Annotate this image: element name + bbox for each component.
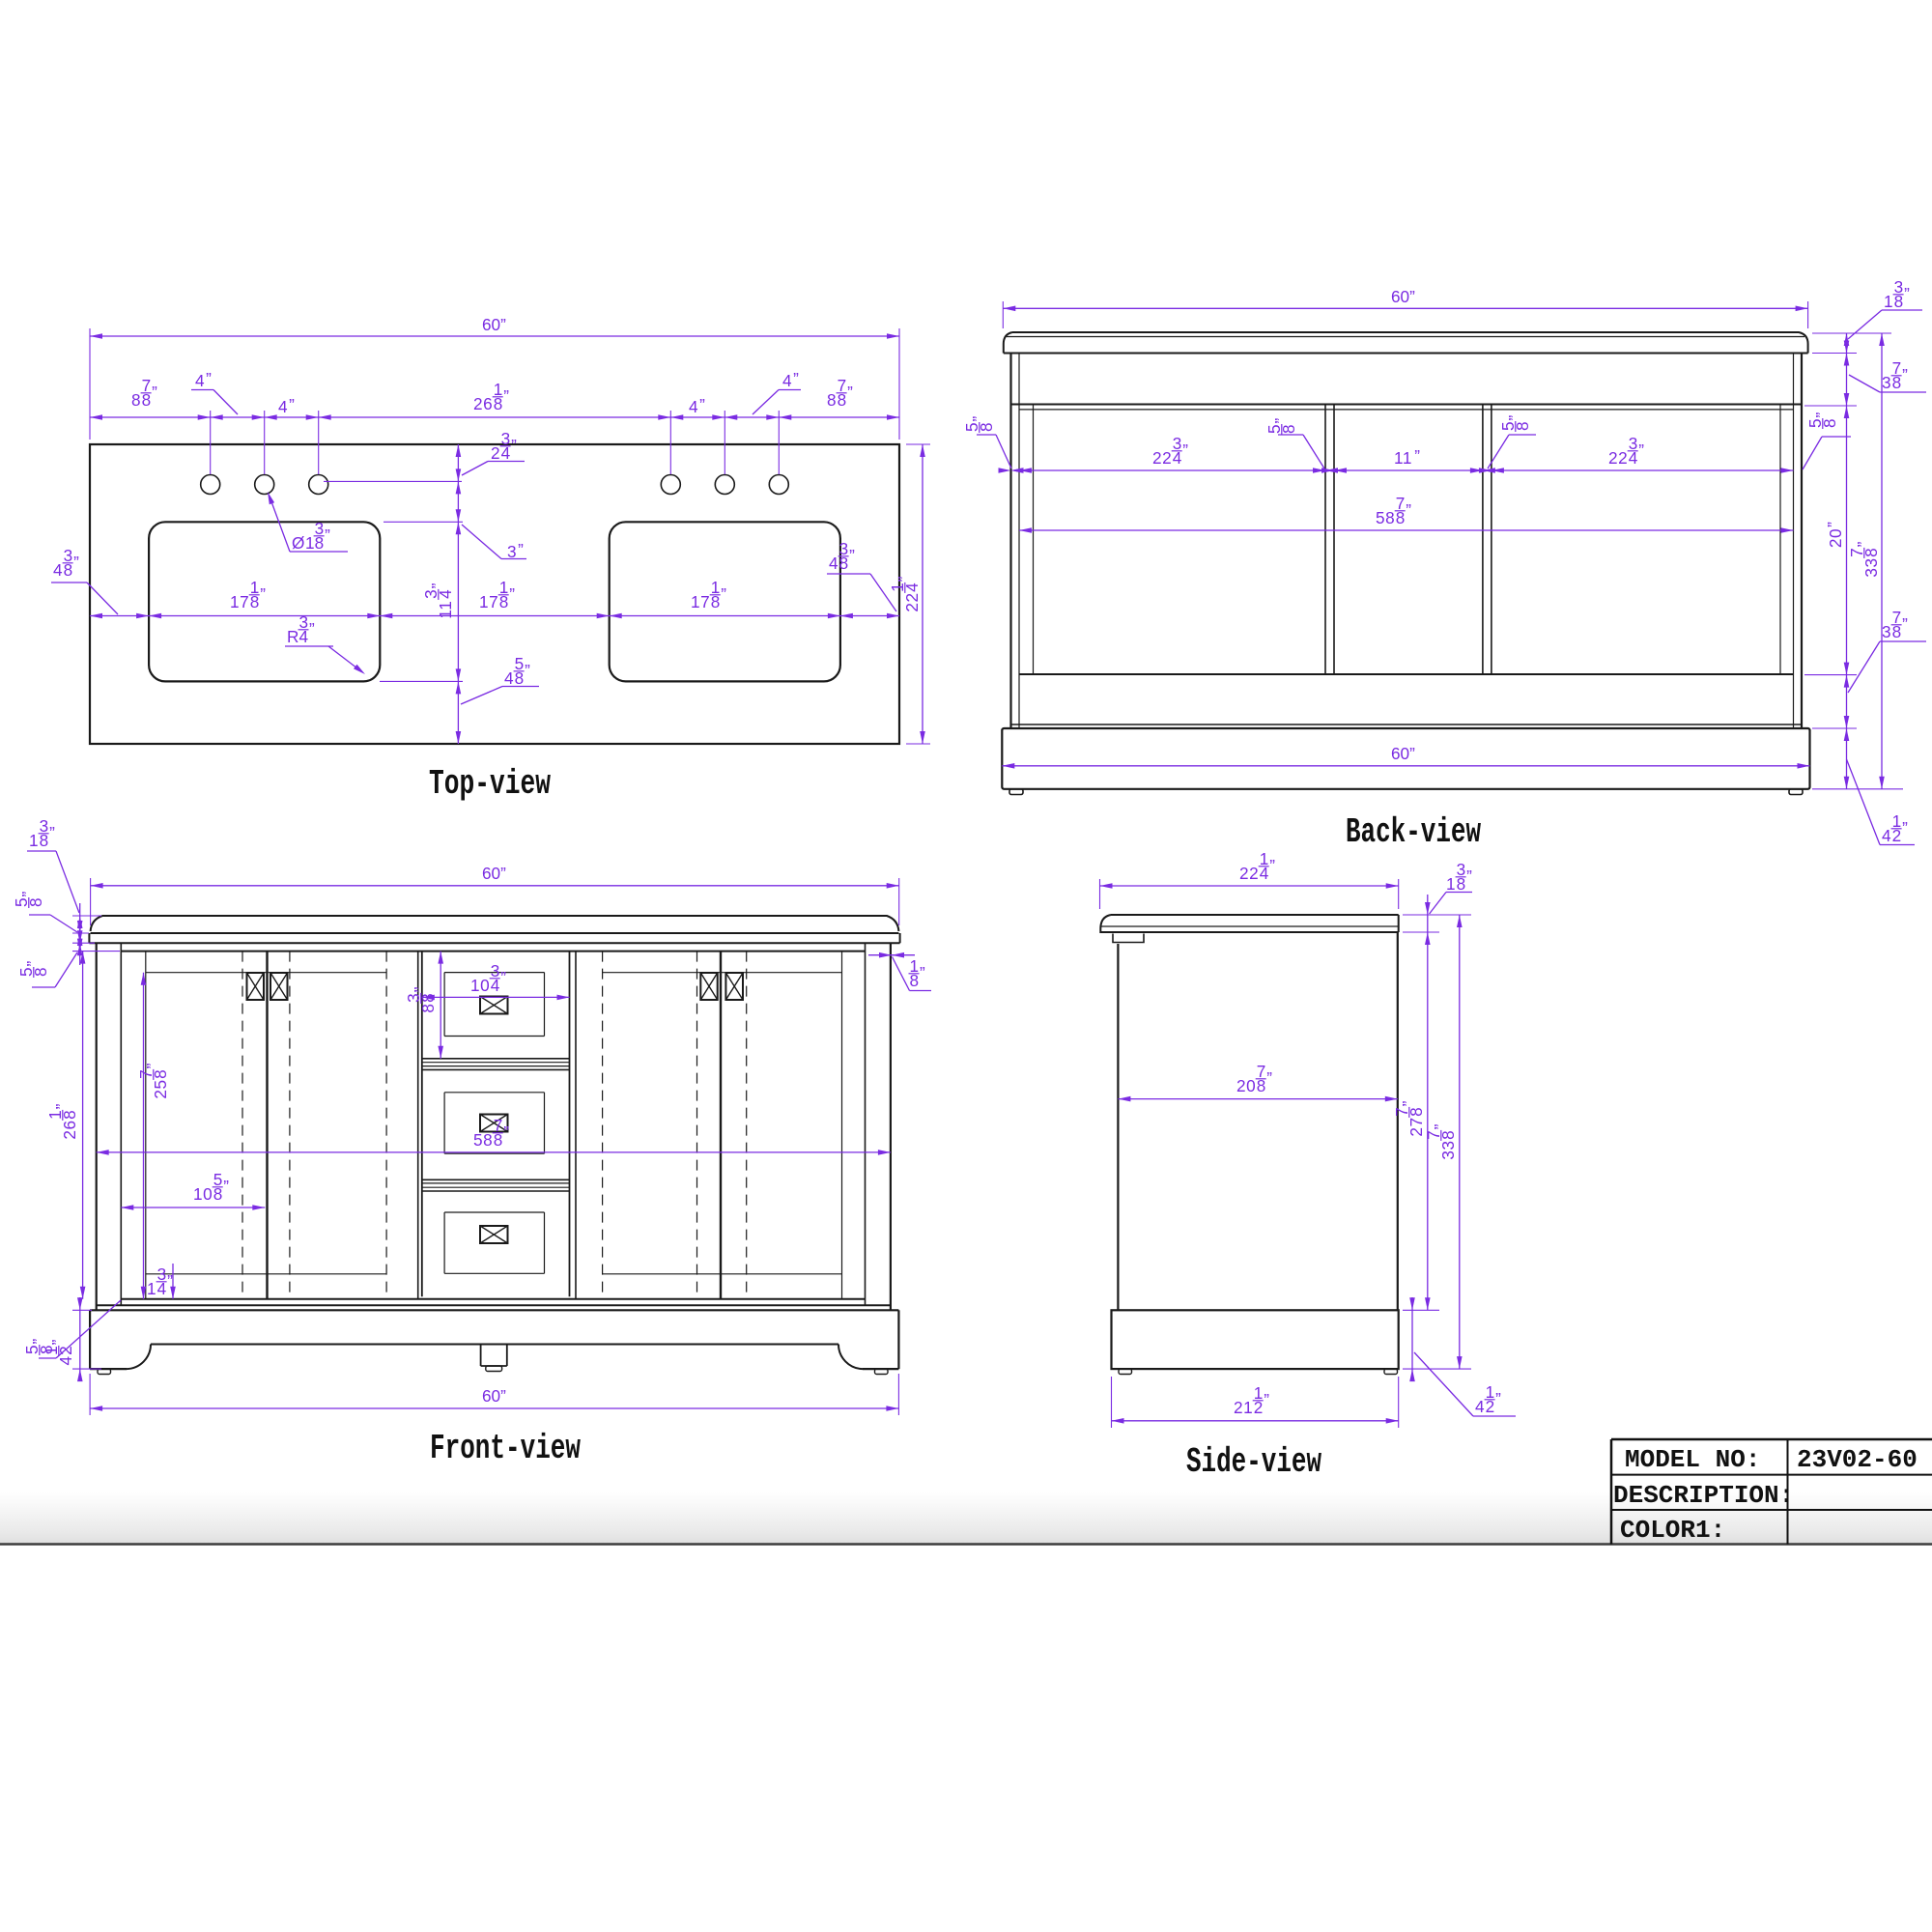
svg-text:”: ”	[49, 823, 55, 842]
svg-text:”: ”	[511, 436, 517, 455]
svg-text:”: ”	[1466, 867, 1472, 886]
svg-text:Back-view: Back-view	[1346, 812, 1481, 852]
svg-text:”: ”	[518, 540, 524, 559]
svg-text:25: 25	[151, 1079, 170, 1098]
svg-text:4: 4	[53, 560, 63, 580]
svg-text:R: R	[287, 627, 299, 646]
svg-text:”: ”	[143, 1063, 162, 1068]
svg-text:”: ”	[895, 576, 914, 582]
svg-text:COLOR1:: COLOR1:	[1620, 1516, 1725, 1545]
svg-text:”: ”	[503, 386, 509, 406]
svg-text:”: ”	[1264, 1390, 1269, 1409]
svg-text:60”: 60”	[1391, 287, 1415, 306]
svg-text:”: ”	[223, 1177, 229, 1196]
svg-text:”: ”	[1904, 284, 1910, 303]
svg-text:”: ”	[525, 661, 530, 680]
svg-text:8: 8	[827, 390, 837, 410]
svg-text:”: ”	[18, 892, 38, 897]
svg-text:”: ”	[289, 395, 295, 414]
svg-text:26: 26	[473, 394, 493, 413]
svg-text:8: 8	[418, 1003, 438, 1012]
svg-text:”: ”	[1399, 1100, 1418, 1106]
svg-text:17: 17	[230, 592, 249, 611]
svg-text:”: ”	[1431, 1123, 1450, 1129]
svg-text:10: 10	[193, 1184, 213, 1204]
svg-text:4: 4	[195, 371, 205, 390]
svg-text:”: ”	[73, 553, 79, 572]
svg-text:”: ”	[1266, 1068, 1272, 1088]
svg-text:4: 4	[1475, 1397, 1485, 1416]
svg-text:4: 4	[278, 397, 288, 416]
svg-text:”: ”	[1902, 614, 1908, 634]
svg-text:”: ”	[721, 584, 726, 604]
svg-text:1: 1	[1884, 292, 1893, 311]
svg-text:3: 3	[1882, 622, 1891, 641]
svg-text:”: ”	[260, 584, 266, 604]
svg-text:4: 4	[504, 668, 514, 688]
svg-text:”: ”	[793, 369, 799, 388]
svg-text:60”: 60”	[482, 315, 506, 334]
svg-text:”: ”	[849, 546, 855, 565]
svg-text:60”: 60”	[482, 864, 506, 883]
svg-text:4: 4	[829, 554, 838, 573]
svg-text:20: 20	[1236, 1076, 1256, 1095]
svg-text:11: 11	[1394, 448, 1412, 468]
svg-text:”: ”	[500, 968, 506, 987]
svg-text:”: ”	[509, 584, 515, 604]
svg-text:33: 33	[1438, 1140, 1458, 1159]
svg-text:Ø1: Ø1	[292, 533, 315, 553]
svg-text:”: ”	[152, 383, 157, 402]
svg-text:”: ”	[29, 1339, 48, 1345]
svg-text:1: 1	[29, 831, 39, 850]
svg-text:4: 4	[1882, 826, 1891, 845]
svg-text:”: ”	[1271, 418, 1291, 424]
svg-text:”: ”	[1182, 440, 1188, 460]
svg-text:17: 17	[691, 592, 710, 611]
svg-text:”: ”	[1406, 500, 1411, 520]
svg-text:”: ”	[1505, 415, 1524, 421]
svg-text:”: ”	[1902, 818, 1908, 838]
svg-text:17: 17	[479, 592, 498, 611]
svg-text:26: 26	[60, 1120, 79, 1139]
svg-text:”: ”	[847, 383, 853, 402]
svg-text:10: 10	[470, 976, 490, 995]
svg-text:”: ”	[1854, 541, 1873, 547]
svg-text:”: ”	[428, 582, 447, 588]
svg-text:”: ”	[1495, 1389, 1501, 1408]
svg-text:20: 20	[1826, 528, 1845, 548]
svg-text:”: ”	[1812, 412, 1832, 418]
svg-text:”: ”	[1902, 365, 1908, 384]
svg-text:”: ”	[1414, 446, 1420, 466]
svg-text:MODEL NO:: MODEL NO:	[1625, 1445, 1760, 1474]
svg-text:4: 4	[782, 371, 792, 390]
svg-text:33: 33	[1861, 557, 1881, 577]
svg-text:”: ”	[23, 961, 43, 967]
svg-text:”: ”	[920, 963, 925, 982]
svg-text:21: 21	[1234, 1398, 1253, 1417]
svg-text:Top-view: Top-view	[429, 764, 551, 804]
svg-text:22: 22	[1152, 448, 1172, 468]
svg-text:”: ”	[48, 1339, 68, 1345]
svg-text:”: ”	[1269, 856, 1275, 875]
svg-text:1: 1	[1446, 874, 1456, 894]
svg-text:”: ”	[969, 416, 988, 422]
svg-text:4: 4	[56, 1355, 75, 1365]
svg-text:60”: 60”	[1391, 744, 1415, 763]
svg-text:60”: 60”	[482, 1386, 506, 1406]
svg-text:”: ”	[206, 369, 212, 388]
svg-text:22: 22	[1608, 448, 1628, 468]
svg-text:3: 3	[1882, 373, 1891, 392]
svg-text:4: 4	[689, 397, 698, 416]
svg-text:22: 22	[902, 592, 922, 611]
svg-text:22: 22	[1239, 864, 1259, 883]
svg-text:”: ”	[325, 526, 330, 545]
svg-text:8: 8	[131, 390, 141, 410]
svg-text:”: ”	[1824, 522, 1843, 527]
svg-text:58: 58	[1376, 508, 1395, 527]
svg-text:”: ”	[411, 986, 430, 992]
svg-text:DESCRIPTION:: DESCRIPTION:	[1613, 1481, 1794, 1510]
svg-text:2: 2	[491, 443, 500, 463]
svg-text:27: 27	[1406, 1117, 1426, 1136]
svg-text:Side-view: Side-view	[1186, 1442, 1321, 1482]
svg-text:”: ”	[309, 619, 315, 639]
svg-text:Front-view: Front-view	[430, 1429, 581, 1468]
svg-text:”: ”	[503, 1122, 509, 1142]
svg-text:58: 58	[473, 1130, 493, 1150]
svg-text:23V02-60: 23V02-60	[1797, 1445, 1918, 1474]
svg-text:1: 1	[147, 1279, 156, 1298]
svg-text:”: ”	[699, 395, 705, 414]
svg-text:”: ”	[52, 1103, 71, 1109]
svg-text:11: 11	[436, 601, 455, 619]
svg-text:”: ”	[1638, 440, 1644, 460]
